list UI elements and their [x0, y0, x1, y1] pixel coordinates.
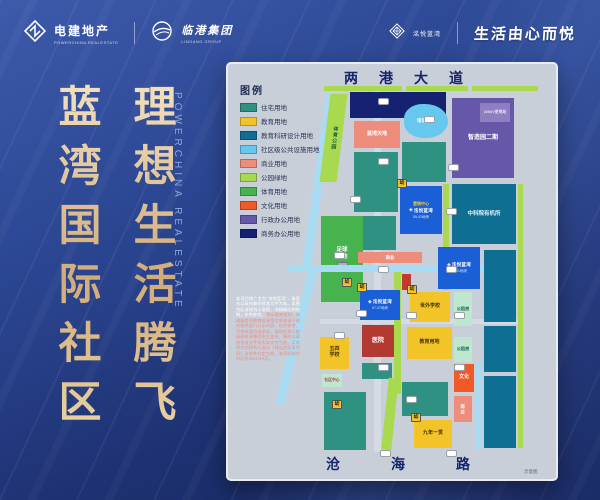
road-name-pill [454, 312, 465, 319]
legend-swatch [240, 215, 257, 224]
green-diag-bottom [381, 378, 398, 451]
road-name-pill [446, 450, 457, 457]
rent-2: 公租房 [454, 337, 472, 362]
sci-right-3 [484, 376, 516, 448]
legend-swatch [240, 187, 257, 196]
lanwan-tiandi: 蓝湾天地 [354, 121, 400, 148]
nine-year-school-label: 九年一贯 [423, 431, 443, 437]
legend-label: 商业用地 [261, 158, 287, 168]
sci-right-2 [484, 326, 516, 372]
header-right: 洺悦蓝湾 生活由心而悦 [389, 22, 576, 44]
legend-item: 教育用地 [240, 116, 320, 126]
kindergarten-tag: 幼 [411, 413, 421, 422]
legend-item: 社区级公共设施用地 [240, 144, 320, 154]
biz-street-label: 商业 [386, 255, 395, 260]
community-center: 社区中心 [322, 374, 342, 387]
road-name-pill [378, 158, 389, 165]
legend-swatch [240, 145, 257, 154]
kindergarten-tag: 幼 [342, 278, 352, 287]
plot-id: 07-07地块 [372, 306, 388, 311]
substation: 220kV变电站 [480, 103, 510, 122]
headline: 蓝湾国际社区 理想生活腾飞 [44, 84, 181, 438]
wusi-school: 五四学校 [320, 337, 349, 369]
legend-label: 教育科研设计用地 [261, 130, 313, 140]
road-name-pill [356, 310, 367, 317]
lingang-sub: LINGANG GROUP [181, 39, 233, 44]
plot-logo-icon: ◈ [368, 300, 372, 305]
schematic-note: 示意图 [524, 469, 538, 475]
legend-label: 公园绿地 [261, 172, 287, 182]
lingang-name: 临港集团 [181, 22, 233, 38]
sports-park-strip-label: 体育公园 [329, 126, 338, 150]
plot-a: 营销中心◈洺悦蓝湾05-02地块幼 [400, 186, 442, 234]
powerchina-name: 电建地产 [54, 22, 118, 39]
land-use-map: 两港大道 沧海路 示意图 图例 住宅用地教育用地教育科研设计用地社区级公共设施用… [228, 64, 556, 479]
kindergarten-tag: 幼 [407, 285, 417, 294]
legend-item: 文化用地 [240, 200, 320, 210]
disclaimer-red: 图示相关规划、市政配套及教育资源等信息来源于政府相关部门公示内容，仅供参考，不构… [236, 312, 300, 361]
legend-label: 住宅用地 [261, 102, 287, 112]
road-name-pill [424, 116, 435, 123]
road-name-pill [378, 364, 389, 371]
sci-right-1 [484, 250, 516, 322]
lanwan-tiandi-label: 蓝湾天地 [367, 132, 387, 138]
legend-label: 文化用地 [261, 200, 287, 210]
legend-swatch [240, 131, 257, 140]
wusi-school-label: 五四学校 [329, 347, 339, 359]
project-badge-name: 洺悦蓝湾 [413, 29, 441, 38]
legend-item: 行政办公用地 [240, 214, 320, 224]
legend-label: 商务办公用地 [261, 228, 300, 238]
edu-land: 教育用地 [407, 327, 452, 359]
biz-street: 商业 [358, 252, 422, 263]
legend-items: 住宅用地教育用地教育科研设计用地社区级公共设施用地商业用地公园绿地体育用地文化用… [240, 102, 320, 238]
watermark-text: POWERCHINA REALESTATE [172, 92, 183, 311]
legend-item: 体育用地 [240, 186, 320, 196]
legend-item: 教育科研设计用地 [240, 130, 320, 140]
legend-swatch [240, 201, 257, 210]
cas-organic-institute: 中科院有机所 [452, 184, 516, 244]
legend-swatch [240, 173, 257, 182]
plot-logo-name: 洺悦蓝湾 [373, 299, 392, 305]
legend-item: 商业用地 [240, 158, 320, 168]
zhizaoyuan-phase2-label: 智造园二期 [468, 135, 498, 142]
cas-organic-institute-label: 中科院有机所 [467, 211, 500, 217]
road-name-pill [378, 98, 389, 105]
canal-right [475, 364, 481, 450]
legend-swatch [240, 229, 257, 238]
kindergarten-tag: 幼 [332, 400, 342, 409]
rent-2-label: 公租房 [457, 347, 470, 352]
header-divider-right [457, 22, 458, 44]
road-name-pill [454, 364, 465, 371]
legend: 图例 住宅用地教育用地教育科研设计用地社区级公共设施用地商业用地公园绿地体育用地… [240, 82, 320, 242]
road-name-pill [406, 396, 417, 403]
legend-label: 教育用地 [261, 116, 287, 126]
road-label-bottom: 沧海路 [326, 454, 521, 474]
road-name-pill [334, 252, 345, 259]
road-name-pill [446, 208, 457, 215]
rent-1: 公租房 [454, 292, 472, 326]
legend-label: 社区级公共设施用地 [261, 144, 320, 154]
legend-label: 行政办公用地 [261, 214, 300, 224]
marketing-center-label: 营销中心 [413, 201, 429, 207]
plot-id: 05-02地块 [413, 215, 429, 220]
kindergarten-tag: 幼 [357, 283, 367, 292]
park-edge-right [518, 184, 523, 448]
header-divider [134, 22, 135, 44]
plot-b: ◈洺悦蓝湾07-01地块 [438, 247, 480, 289]
powerchina-sub: POWERCHINA REALESTATE [54, 40, 118, 45]
res-block-1 [354, 152, 398, 212]
lingang-logo-icon [151, 20, 173, 47]
nine-year-school: 九年一贯幼 [414, 420, 452, 448]
hospital: 医院 [362, 325, 394, 357]
shiwai-school-label: 世外学校 [420, 304, 440, 310]
header: 电建地产 POWERCHINA REALESTATE 临港集团 LINGANG … [0, 14, 600, 52]
road-name-pill [350, 196, 361, 203]
edu-land-label: 教育用地 [419, 340, 439, 346]
community-center-label: 社区中心 [324, 378, 339, 382]
biz-strip-2: 商业 [454, 396, 472, 422]
road-name-pill [406, 312, 417, 319]
legend-item: 公园绿地 [240, 172, 320, 182]
substation-label: 220kV变电站 [484, 110, 506, 114]
biz-strip-2-label: 商业 [460, 404, 465, 415]
hospital-label: 医院 [372, 338, 384, 345]
legend-swatch [240, 117, 257, 126]
legend-title: 图例 [240, 82, 320, 97]
disclaimer: 本项目推广名为“洺悦蓝湾”，备案名以政府最终核准文件为准。本图为区域规划示意图，… [236, 296, 300, 361]
mingyue-badge-icon [389, 23, 405, 44]
plot-logo-icon: ◈ [409, 208, 413, 213]
road-label-top: 两港大道 [344, 68, 484, 88]
road-name-pill [380, 450, 391, 457]
powerchina-logo-icon [24, 20, 46, 47]
road-name-pill [448, 164, 459, 171]
legend-swatch [240, 103, 257, 112]
kindergarten-tag: 幼 [397, 179, 407, 188]
slogan: 生活由心而悦 [473, 23, 576, 44]
legend-swatch [240, 159, 257, 168]
header-left: 电建地产 POWERCHINA REALESTATE 临港集团 LINGANG … [24, 20, 233, 47]
road-name-pill [378, 266, 389, 273]
culture-block-label: 文化 [459, 375, 469, 381]
res-block-4 [324, 392, 366, 450]
legend-label: 体育用地 [261, 186, 287, 196]
rent-1-label: 公租房 [457, 307, 470, 312]
legend-item: 住宅用地 [240, 102, 320, 112]
map-panel: 两港大道 沧海路 示意图 图例 住宅用地教育用地教育科研设计用地社区级公共设施用… [226, 62, 558, 481]
road-name-pill [334, 332, 345, 339]
legend-item: 商务办公用地 [240, 228, 320, 238]
res-block-2 [402, 142, 446, 182]
headline-col-1: 蓝湾国际社区 [44, 84, 106, 438]
plot-logo-name: 洺悦蓝湾 [414, 208, 433, 214]
road-name-pill [446, 266, 457, 273]
